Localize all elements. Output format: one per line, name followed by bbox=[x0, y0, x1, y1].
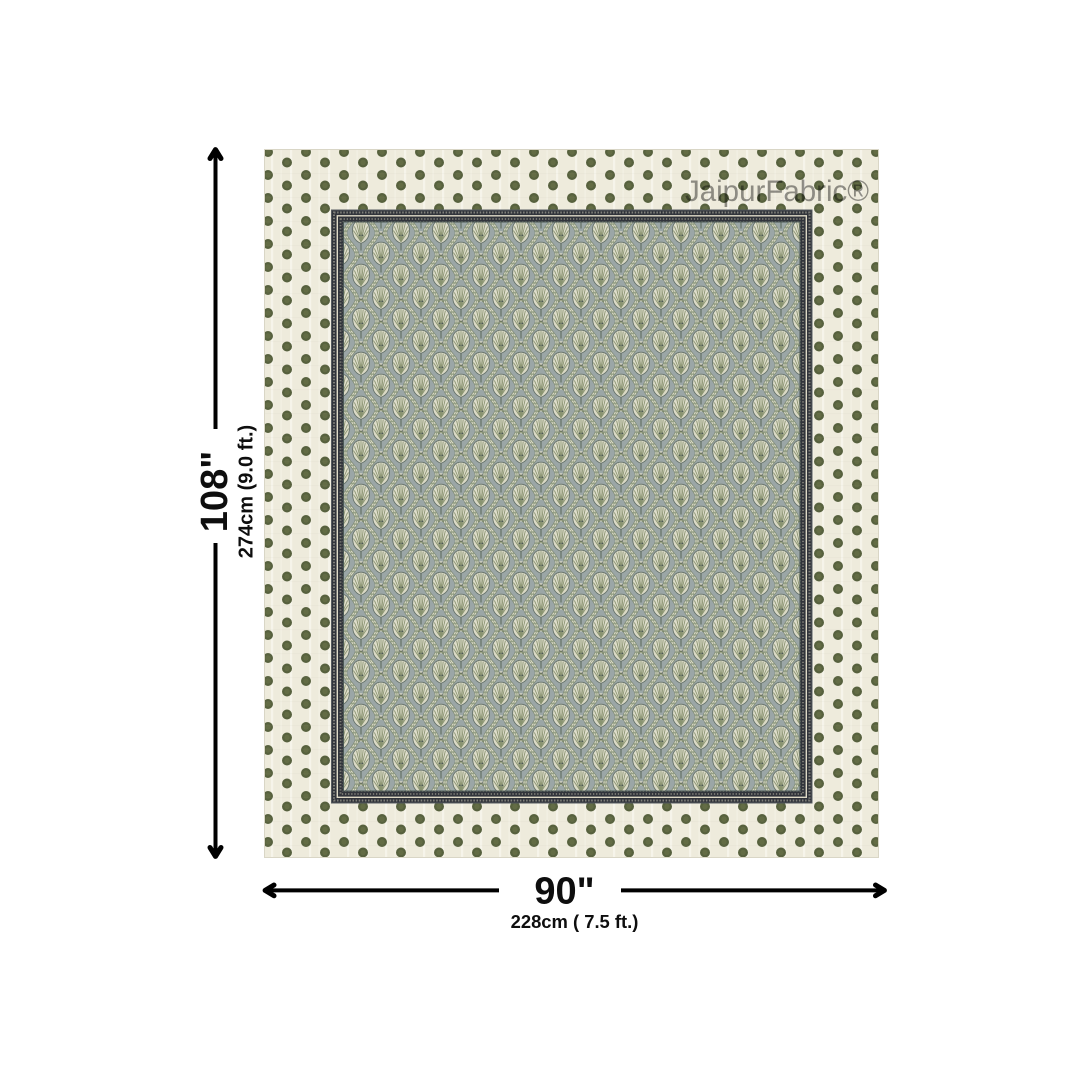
svg-text:JaipurFabric®: JaipurFabric® bbox=[685, 175, 869, 208]
svg-text:108": 108" bbox=[194, 451, 236, 532]
svg-text:274cm (9.0 ft.): 274cm (9.0 ft.) bbox=[236, 425, 258, 558]
svg-text:228cm ( 7.5 ft.): 228cm ( 7.5 ft.) bbox=[511, 911, 639, 932]
svg-text:90": 90" bbox=[534, 871, 594, 913]
